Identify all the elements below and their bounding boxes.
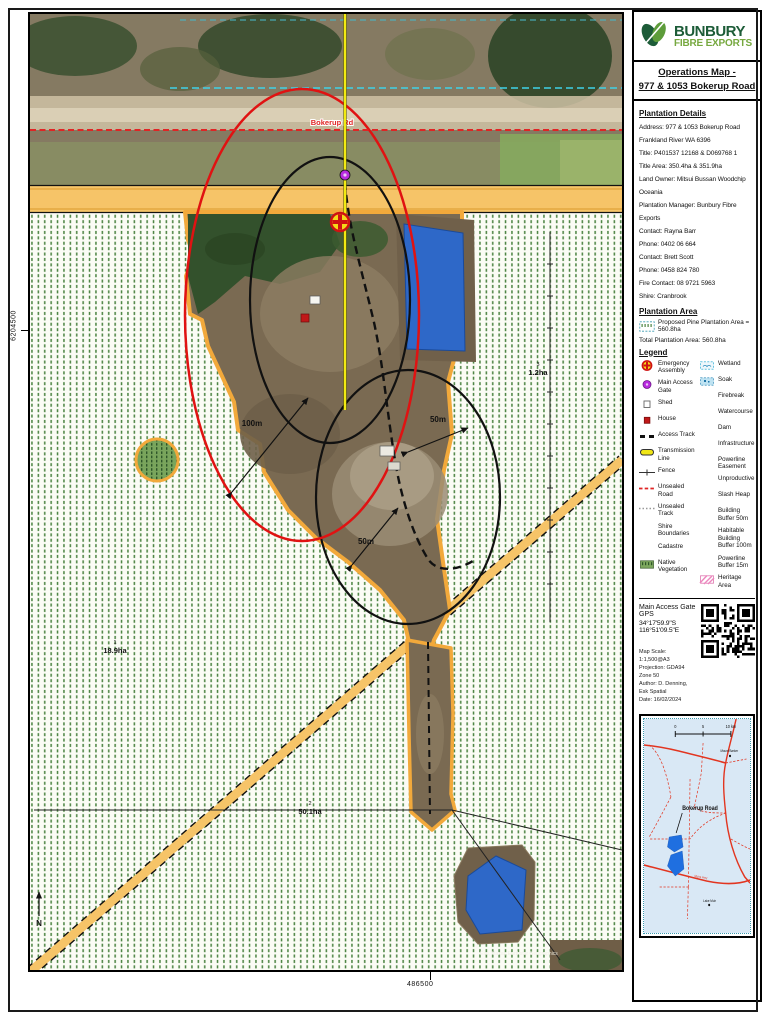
map-title: Operations Map - 977 & 1053 Bokerup Road [632,60,762,101]
soak-icon [699,376,715,387]
firebreak-icon [699,392,715,403]
detail-line: Phone: 0458 824 780 [639,264,755,277]
unsealed-track-icon [639,503,655,514]
watercourse-icon [699,408,715,419]
meta-line: Map Scale: 1:1,500@A3 [639,648,697,664]
aerial-top-band [30,14,622,186]
operations-map-sheet: Bokerup Rd [0,0,770,1024]
legend-item: Unsealed Track [639,503,695,518]
dam-north [396,214,476,362]
legend-item-label: Access Track [658,431,695,438]
legend-right-column: WetlandSoakFirebreakWatercourseDamInfras… [699,360,755,595]
inset-road-label: Bokerup Road [682,806,718,812]
legend-item-label: House [658,415,676,422]
legend: Emergency AssemblyMain Access GateShedHo… [639,360,755,595]
legend-left-column: Emergency AssemblyMain Access GateShedHo… [639,360,695,595]
access-track-icon [639,431,655,442]
cadastre-icon [639,543,655,554]
parcel-area: 1.2ha [528,368,548,377]
legend-item: Emergency Assembly [639,360,695,375]
emergency-assembly-marker [331,213,349,231]
legend-item-label: Native Vegetation [658,559,695,574]
pine-plantation-swatch-icon [639,321,655,330]
legend-item-label: Soak [718,376,732,383]
heritage-area-icon [699,574,715,585]
habitable-building-buffer-icon [699,527,715,538]
aerial-corner [550,940,622,970]
info-panel: BUNBURY FIBRE EXPORTS Operations Map - 9… [632,10,762,1002]
legend-item-label: Watercourse [718,408,753,415]
legend-item: Habitable Building Buffer 100m [699,527,755,549]
detail-line: Phone: 0402 06 664 [639,238,755,251]
legend-item-label: Unproductive [718,475,754,482]
legend-item: Heritage Area [699,574,755,589]
legend-item: Native Vegetation [639,559,695,574]
gps-label: Main Access Gate GPS [639,604,697,618]
legend-item-label: Building Buffer 50m [718,507,755,522]
plantation-details-lines: Address: 977 & 1053 Bokerup RoadFranklan… [639,121,755,303]
proposed-plantation-row: Proposed Pine Plantation Area = 560.8ha [639,319,755,333]
legend-item: Firebreak [699,392,755,403]
legend-item: Unsealed Road [639,483,695,498]
legend-item-label: Main Access Gate [658,379,695,394]
main-access-gate-marker [340,170,350,180]
legend-item-label: Emergency Assembly [658,360,695,375]
legend-item: Soak [699,376,755,387]
north-label: N [36,919,42,928]
legend-item: House [639,415,695,426]
details-legend-box: Plantation Details Address: 977 & 1053 B… [632,99,762,1002]
meta-line: Projection: GDA94 Zone 50 [639,664,697,680]
map-canvas: Bokerup Rd [30,14,622,970]
plantation-area-heading: Plantation Area [639,307,755,316]
firebreak-road [30,185,622,213]
parcel-area: 18.9ha [103,646,127,655]
gps-coordinates: 34°17'59.9"S 116°51'09.5"E [639,620,697,634]
house [301,314,309,322]
plantation-details-heading: Plantation Details [639,109,755,118]
legend-item-label: Slash Heap [718,491,750,498]
easting-coordinate: 486500 [407,981,433,988]
detail-line: Title: P401537 12168 & D069768 1 [639,147,755,160]
legend-item: Powerline Buffer 15m [699,555,755,570]
detail-line: Contact: Rayna Barr [639,225,755,238]
legend-item-label: Unsealed Track [658,503,695,518]
unsealed-road-icon [639,483,655,494]
legend-item: Unproductive [699,475,755,486]
inset-town-label: Mount Barker [720,749,738,753]
legend-item-label: Powerline Easement [718,456,755,471]
proposed-plantation-label: Proposed Pine Plantation Area = 560.8ha [658,319,755,333]
legend-item: Building Buffer 50m [699,507,755,522]
bunbury-leaf-logo-icon [637,17,671,56]
bokerup-rd-label: Bokerup Rd [311,118,354,127]
meta-line: Date: 16/02/2024 [639,696,697,704]
powerline-buffer-icon [699,555,715,566]
detail-line: Shire: Cranbrook [639,290,755,303]
map-meta: Map Scale: 1:1,500@A3Projection: GDA94 Z… [639,648,697,704]
legend-item-label: Shire Boundaries [658,523,695,538]
legend-item: Fence [639,467,695,478]
brand-header: BUNBURY FIBRE EXPORTS [632,10,762,62]
slash-heap-icon [699,491,715,502]
detail-line: Address: 977 & 1053 Bokerup Road [639,121,755,134]
buffer-100m-label: 100m [242,419,262,428]
house-icon [639,415,655,426]
fence-icon [639,467,655,478]
legend-item-label: Habitable Building Buffer 100m [718,527,755,549]
meta-line: Author: D. Denning, Esk Spatial [639,680,697,696]
inset-town-label: Lake Muir [703,899,716,903]
native-vegetation-patch [136,439,178,481]
legend-item: Wetland [699,360,755,371]
building-buffer-icon [699,507,715,518]
detail-line: Plantation Manager: Bunbury Fibre Export… [639,199,755,225]
infrastructure-icon [699,440,715,451]
qr-code [701,604,755,658]
legend-item-label: Transmission Line [658,447,695,462]
legend-item-label: Shed [658,399,672,406]
locality-inset-map: 0 5 10 km Bokerup Road Muirs Hwy [639,714,755,938]
main-map: Bokerup Rd [28,12,624,972]
dam-south [454,845,535,944]
shed [380,446,394,456]
detail-line: Title Area: 350.4ha & 351.9ha [639,160,755,173]
powerline-easement-icon [699,456,715,467]
legend-heading: Legend [639,348,755,357]
legend-item-label: Unsealed Road [658,483,695,498]
legend-item-label: Wetland [718,360,741,367]
legend-item-label: Infrastructure [718,440,754,447]
legend-item: Main Access Gate [639,379,695,394]
shed [310,296,320,304]
gps-block: Main Access Gate GPS 34°17'59.9"S 116°51… [639,598,755,704]
northing-tick [21,330,28,331]
transmission-line-icon [639,447,655,458]
inset-scale-10: 10 km [726,724,737,729]
map-title-line2: 977 & 1053 Bokerup Road [636,80,758,94]
legend-item-label: Fence [658,467,675,474]
legend-item: Powerline Easement [699,456,755,471]
buffer-50m-label: 50m [430,415,446,424]
legend-item-label: Dam [718,424,731,431]
legend-item: Shed [639,399,695,410]
shed [388,462,400,470]
wetland-icon [699,360,715,371]
legend-item-label: Powerline Buffer 15m [718,555,755,570]
parcel-area: 50.1ha [298,807,322,816]
unproductive-icon [699,475,715,486]
native-vegetation-icon [639,559,655,570]
northing-coordinate: 6204500 [11,297,18,355]
detail-line: Oceania [639,186,755,199]
legend-item: Access Track [639,431,695,442]
legend-item: Shire Boundaries [639,523,695,538]
legend-item: Slash Heap [699,491,755,502]
legend-item: Infrastructure [699,440,755,451]
dam-icon [699,424,715,435]
detail-line: Frankland River WA 6396 [639,134,755,147]
legend-item: Watercourse [699,408,755,419]
brand-subname: FIBRE EXPORTS [674,39,752,49]
shed-icon [639,399,655,410]
legend-item: Cadastre [639,543,695,554]
legend-item-label: Heritage Area [718,574,755,589]
legend-item: Dam [699,424,755,435]
detail-line: Land Owner: Mitsui Bussan Woodchip [639,173,755,186]
map-title-line1: Operations Map - [636,66,758,80]
inset-map-canvas: 0 5 10 km Bokerup Road Muirs Hwy [644,719,750,933]
brand-name: BUNBURY [674,24,752,39]
easting-tick [430,972,431,980]
detail-line: Contact: Brett Scott [639,251,755,264]
main-access-gate-icon [639,379,655,390]
legend-item: Transmission Line [639,447,695,462]
map-attribution: Esri, Maxar, Earthstar Geographics [480,951,558,957]
total-plantation-label: Total Plantation Area: 560.8ha [639,337,755,344]
detail-line: Fire Contact: 08 9721 5963 [639,277,755,290]
buffer-50m-label: 50m [358,537,374,546]
emergency-assembly-icon [639,360,655,371]
legend-item-label: Cadastre [658,543,683,550]
legend-item-label: Firebreak [718,392,744,399]
shire-boundaries-icon [639,523,655,534]
